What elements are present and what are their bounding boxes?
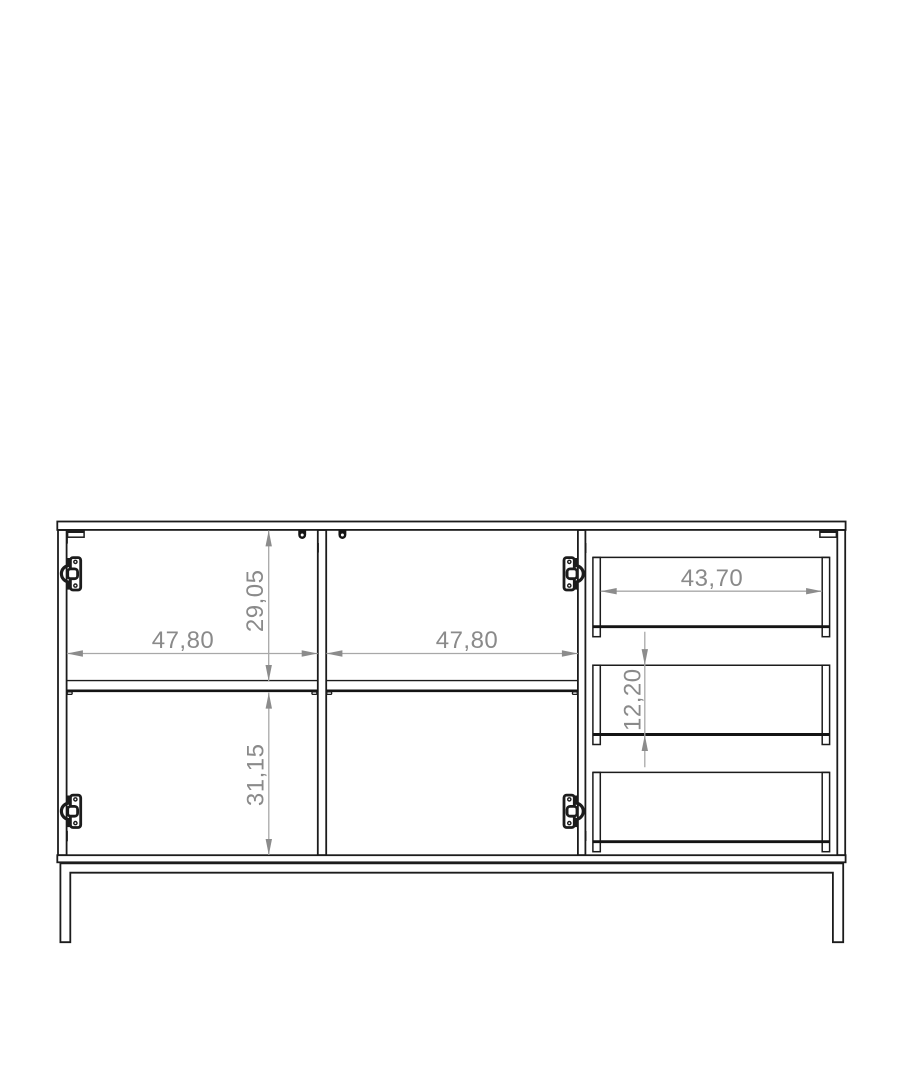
svg-text:12,20: 12,20: [620, 668, 647, 731]
svg-text:43,70: 43,70: [681, 565, 744, 592]
svg-text:31,15: 31,15: [243, 744, 270, 807]
svg-text:47,80: 47,80: [436, 627, 499, 654]
svg-text:47,80: 47,80: [152, 627, 215, 654]
svg-text:29,05: 29,05: [242, 570, 269, 633]
